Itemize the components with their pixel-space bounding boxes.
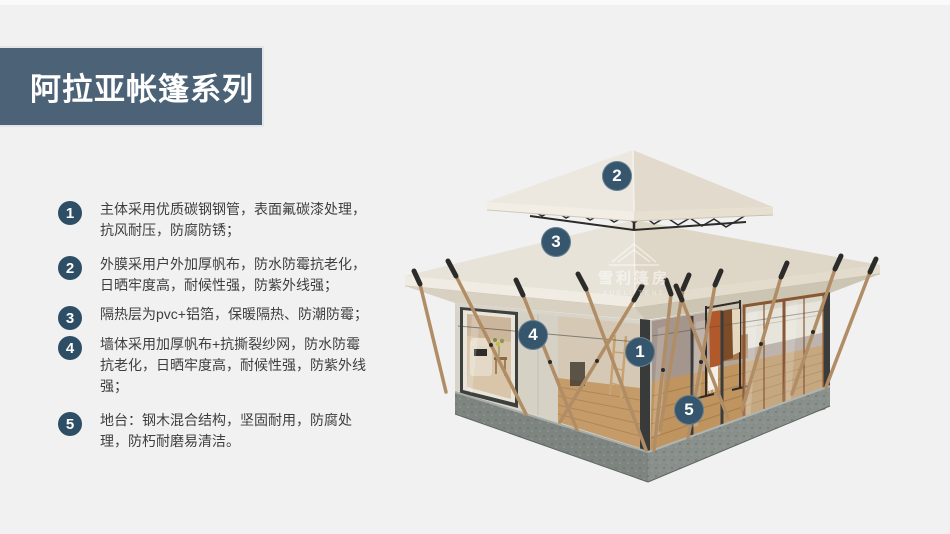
feature-badge-5: 5 — [58, 412, 82, 436]
slide: 阿拉亚帐篷系列 1 主体采用优质碳钢钢管，表面氟碳漆处理，抗风耐压，防腐防锈； … — [0, 0, 950, 534]
feature-item-1: 1 主体采用优质碳钢钢管，表面氟碳漆处理，抗风耐压，防腐防锈； — [58, 199, 390, 241]
feature-item-3: 3 隔热层为pvc+铝箔，保暖隔热、防潮防霉； — [58, 304, 390, 330]
flowers — [496, 342, 500, 346]
feature-text-4: 墙体采用加厚帆布+抗撕裂纱网，防水防霉抗老化，日晒牢度高，耐候性强，防紫外线强； — [100, 334, 372, 397]
top-roof — [487, 150, 773, 221]
watermark-en: XUELI TENT — [603, 290, 665, 297]
feature-badge-4: 4 — [58, 336, 82, 360]
feature-text-1: 主体采用优质碳钢钢管，表面氟碳漆处理，抗风耐压，防腐防锈； — [100, 199, 372, 241]
feature-list: 1 主体采用优质碳钢钢管，表面氟碳漆处理，抗风耐压，防腐防锈； 2 外膜采用户外… — [58, 199, 390, 452]
left-window — [460, 307, 518, 408]
page-title: 阿拉亚帐篷系列 — [30, 64, 254, 109]
image-marker-4: 4 — [518, 320, 548, 350]
feature-text-2: 外膜采用户外加厚帆布，防水防霉抗老化，日晒牢度高，耐候性强，防紫外线强； — [100, 254, 372, 296]
feature-item-4: 4 墙体采用加厚帆布+抗撕裂纱网，防水防霉抗老化，日晒牢度高，耐候性强，防紫外线… — [58, 334, 390, 397]
image-marker-3: 3 — [541, 227, 571, 257]
image-marker-5: 5 — [674, 395, 704, 425]
tent-illustration: 雪利篷房 XUELI TENT — [390, 130, 950, 530]
feature-item-2: 2 外膜采用户外加厚帆布，防水防霉抗老化，日晒牢度高，耐候性强，防紫外线强； — [58, 254, 390, 296]
title-banner: 阿拉亚帐篷系列 — [0, 46, 264, 127]
image-marker-2: 2 — [602, 161, 632, 191]
feature-item-5: 5 地台：钢木混合结构，坚固耐用，防腐处理，防朽耐磨易清洁。 — [58, 410, 390, 452]
feature-text-5: 地台：钢木混合结构，坚固耐用，防腐处理，防朽耐磨易清洁。 — [100, 410, 372, 452]
image-marker-1: 1 — [625, 337, 655, 367]
feature-badge-2: 2 — [58, 256, 82, 280]
feature-badge-3: 3 — [58, 306, 82, 330]
feature-badge-1: 1 — [58, 201, 82, 225]
watermark-cn: 雪利篷房 — [598, 269, 670, 287]
top-strip — [0, 0, 950, 5]
feature-text-3: 隔热层为pvc+铝箔，保暖隔热、防潮防霉； — [100, 304, 372, 325]
